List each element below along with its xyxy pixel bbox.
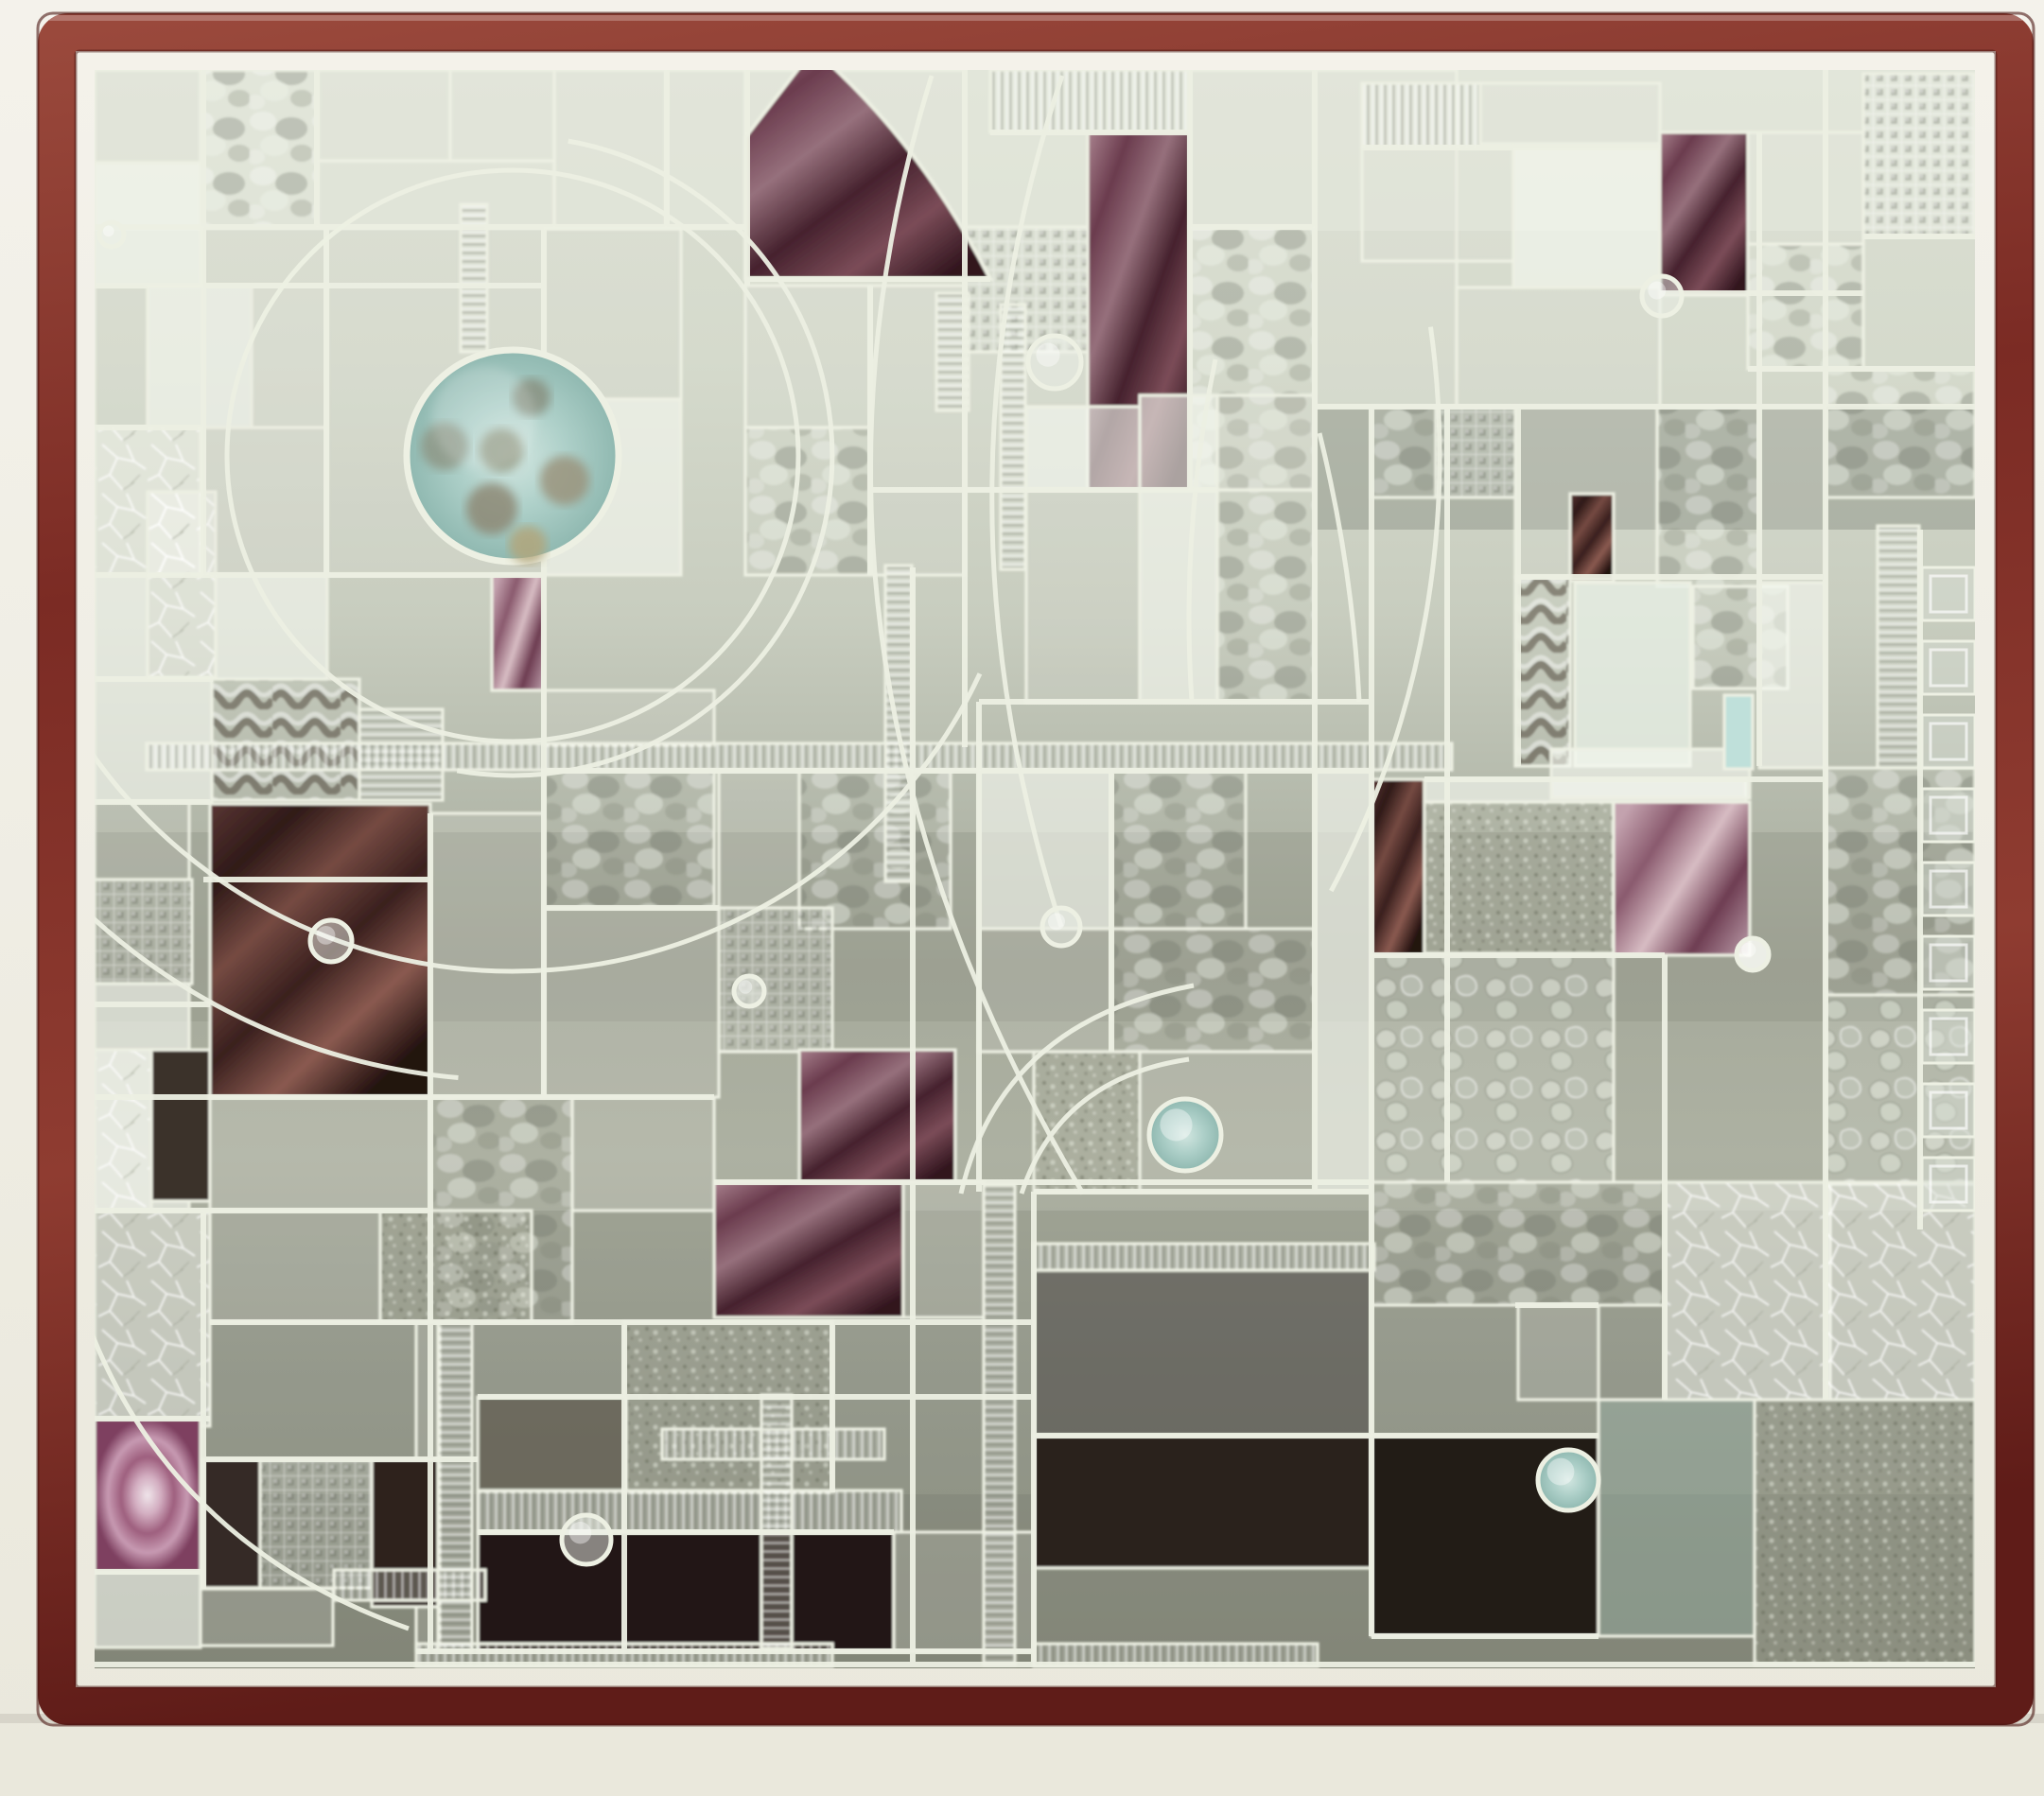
glass-pane-hammer — [201, 70, 318, 227]
teal-jewel — [1538, 1450, 1599, 1510]
bevel-square — [1922, 715, 1975, 768]
glass-pane-clear — [318, 70, 450, 161]
glass-pane-frost — [95, 1572, 201, 1648]
glass-pane-clear — [1217, 395, 1315, 490]
glass-pane-plumRay — [1613, 802, 1750, 955]
glass-jewel — [99, 222, 124, 247]
glass-pane-crackle — [95, 1211, 210, 1426]
bevel-square — [1922, 567, 1975, 620]
glass-pane-clear — [719, 771, 799, 908]
glass-pane-ribH — [1001, 305, 1025, 569]
glass-pane-ribH — [1878, 526, 1919, 768]
glass-pane-wave — [212, 679, 359, 800]
glass-pane-ribH — [984, 1185, 1015, 1665]
teal-rondel-centerpiece — [407, 350, 619, 564]
glass-pane-hammer — [1371, 407, 1436, 497]
bevel-square — [1922, 1084, 1975, 1137]
glass-pane-hammer — [478, 1397, 626, 1491]
glass-pane-clear — [1362, 148, 1513, 261]
teal-jewel — [1149, 1099, 1221, 1171]
glass-pane-hammer — [1657, 407, 1759, 586]
glass-pane-clear — [544, 908, 719, 1097]
glass-pane-granite — [380, 1211, 532, 1322]
glass-pane-hammer — [1034, 1270, 1371, 1436]
glass-pane-granite — [1034, 1052, 1140, 1192]
glass-pane-frost — [979, 771, 1111, 929]
glass-pane-hammer — [544, 771, 714, 908]
photo-of-stained-glass-window — [0, 0, 2044, 1796]
glass-pane-clear — [1748, 132, 1863, 244]
glass-pane-ribV — [979, 743, 1452, 770]
glass-pane-clear — [210, 1097, 430, 1211]
glass-pane-crackle — [95, 1050, 151, 1211]
glass-pane-darkPane — [1034, 1436, 1371, 1568]
glass-pane-clear — [1518, 1305, 1599, 1400]
glass-pane-frost — [1315, 771, 1371, 1192]
glass-pane-aqua — [1724, 695, 1753, 769]
glass-pane-frost — [1551, 749, 1750, 798]
glass-pane-granite — [1755, 1400, 1975, 1665]
glass-pane-wave — [1515, 577, 1570, 766]
glass-pane-granite — [1424, 802, 1614, 953]
glass-pane-frost — [1026, 407, 1140, 490]
glass-pane-pebble — [1371, 955, 1614, 1182]
glass-pane-granite — [624, 1322, 832, 1492]
glass-pane-darkPane — [203, 1459, 260, 1588]
glass-pane-frost — [216, 575, 327, 679]
glass-pane-frost — [95, 575, 148, 679]
glass-pane-clear — [572, 1097, 714, 1211]
glass-pane-clear — [1190, 70, 1315, 227]
glass-jewel — [562, 1515, 611, 1564]
glass-pane-clear — [745, 286, 870, 427]
glass-pane-ribV — [478, 1491, 901, 1532]
glass-pane-hammer — [745, 427, 870, 575]
bevel-square — [1922, 863, 1975, 915]
glass-jewel — [1028, 336, 1081, 389]
glass-jewel — [1737, 938, 1769, 970]
glass-pane-darkPane — [151, 1050, 210, 1201]
glass-pane-hammer — [1826, 369, 1975, 497]
glass-pane-clear — [450, 70, 554, 161]
glass-pane-plumRay — [492, 575, 544, 690]
glass-pane-clear — [95, 286, 148, 427]
glass-pane-hammer — [1371, 1182, 1665, 1305]
glass-pane-ribV — [147, 743, 979, 770]
glass-pane-crackle — [1826, 1182, 1975, 1400]
glass-pane-hammer — [1111, 771, 1246, 929]
glass-pane-ribH — [761, 1395, 792, 1648]
bevel-square — [1922, 936, 1975, 989]
glass-pane-pebble — [1599, 1400, 1755, 1636]
glass-pane-clear — [95, 70, 201, 163]
glass-pane-ribH — [438, 1322, 472, 1651]
glass-pane-hammer — [1748, 244, 1863, 369]
glass-pane-frost — [1759, 583, 1826, 768]
glass-pane-ribV — [1034, 1244, 1374, 1270]
glass-pane-clear — [1026, 490, 1140, 702]
bevel-square — [1922, 1010, 1975, 1063]
glass-pane-hammer — [1111, 929, 1315, 1052]
bevel-square — [1922, 1158, 1975, 1211]
glass-pane-clear — [201, 1589, 333, 1646]
glass-pane-plumDark — [1371, 779, 1424, 955]
glass-pane-clear — [430, 813, 544, 1097]
glass-pane-hammer — [1217, 490, 1315, 702]
glass-pane-clear — [1457, 288, 1660, 407]
glass-pane-darkPane — [478, 1532, 894, 1651]
glass-pane-plumDrape — [799, 1050, 955, 1182]
glass-jewel — [734, 976, 764, 1006]
glass-jewel — [1642, 276, 1682, 316]
glass-pane-clear — [1759, 407, 1826, 583]
bevel-square — [1922, 641, 1975, 694]
glass-pane-frost — [1140, 395, 1217, 702]
stained-glass-window-svg — [0, 0, 2044, 1796]
glass-pane-waffle — [1863, 74, 1975, 236]
rondel-dot — [466, 483, 517, 534]
glass-pane-ribV — [990, 70, 1189, 132]
glass-pane-plumDark — [1570, 494, 1614, 581]
glass-panel — [0, 49, 1975, 1668]
glass-pane-ribV — [1362, 83, 1480, 148]
bevel-square — [1922, 789, 1975, 842]
glass-pane-clear — [210, 1211, 380, 1322]
glass-jewel — [1042, 908, 1080, 946]
glass-pane-frost — [1513, 148, 1660, 288]
glass-pane-bright — [1575, 583, 1690, 766]
glass-pane-plumDrape — [714, 1182, 903, 1317]
glass-pane-crackle — [1665, 1182, 1830, 1400]
glass-pane-plumDrape — [1660, 132, 1748, 295]
rondel-dot — [540, 456, 589, 505]
glass-pane-clear — [1480, 83, 1660, 144]
rondel-dot — [509, 526, 547, 564]
glass-jewel — [310, 920, 352, 962]
